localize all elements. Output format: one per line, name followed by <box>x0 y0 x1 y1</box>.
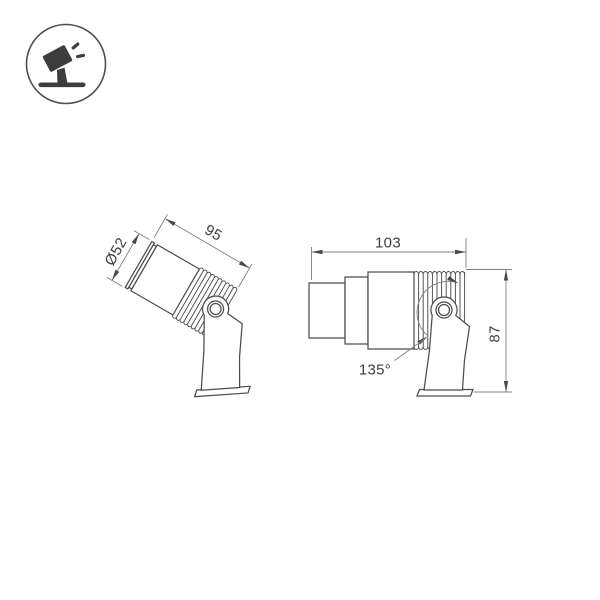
mounting-bracket <box>188 294 251 397</box>
height-label: 87 <box>487 325 504 342</box>
side-view: 135° 103 87 <box>309 235 512 397</box>
lamp-head-icon <box>42 45 73 73</box>
angle-label: 135° <box>359 362 391 379</box>
light-ray-icon <box>71 42 80 50</box>
heatsink-fins-top <box>414 271 465 274</box>
front-hood <box>309 283 345 338</box>
step-ring <box>345 277 368 344</box>
lamp-post-icon <box>57 68 68 84</box>
technical-drawing-page: Ø52 95 135° <box>0 0 600 600</box>
length-label: 95 <box>202 221 225 244</box>
dimension-height: 87 <box>466 270 512 393</box>
width-label: 103 <box>375 235 401 252</box>
diameter-label: Ø52 <box>102 235 131 269</box>
lamp-base-icon <box>39 83 86 88</box>
main-body <box>368 272 414 349</box>
tilted-lamp-glyph <box>39 42 86 87</box>
spotlight-icon <box>27 25 106 104</box>
light-ray-icon <box>76 53 85 58</box>
perspective-view: Ø52 95 <box>102 214 253 396</box>
spotlight-dimension-drawing: Ø52 95 135° <box>0 0 600 600</box>
